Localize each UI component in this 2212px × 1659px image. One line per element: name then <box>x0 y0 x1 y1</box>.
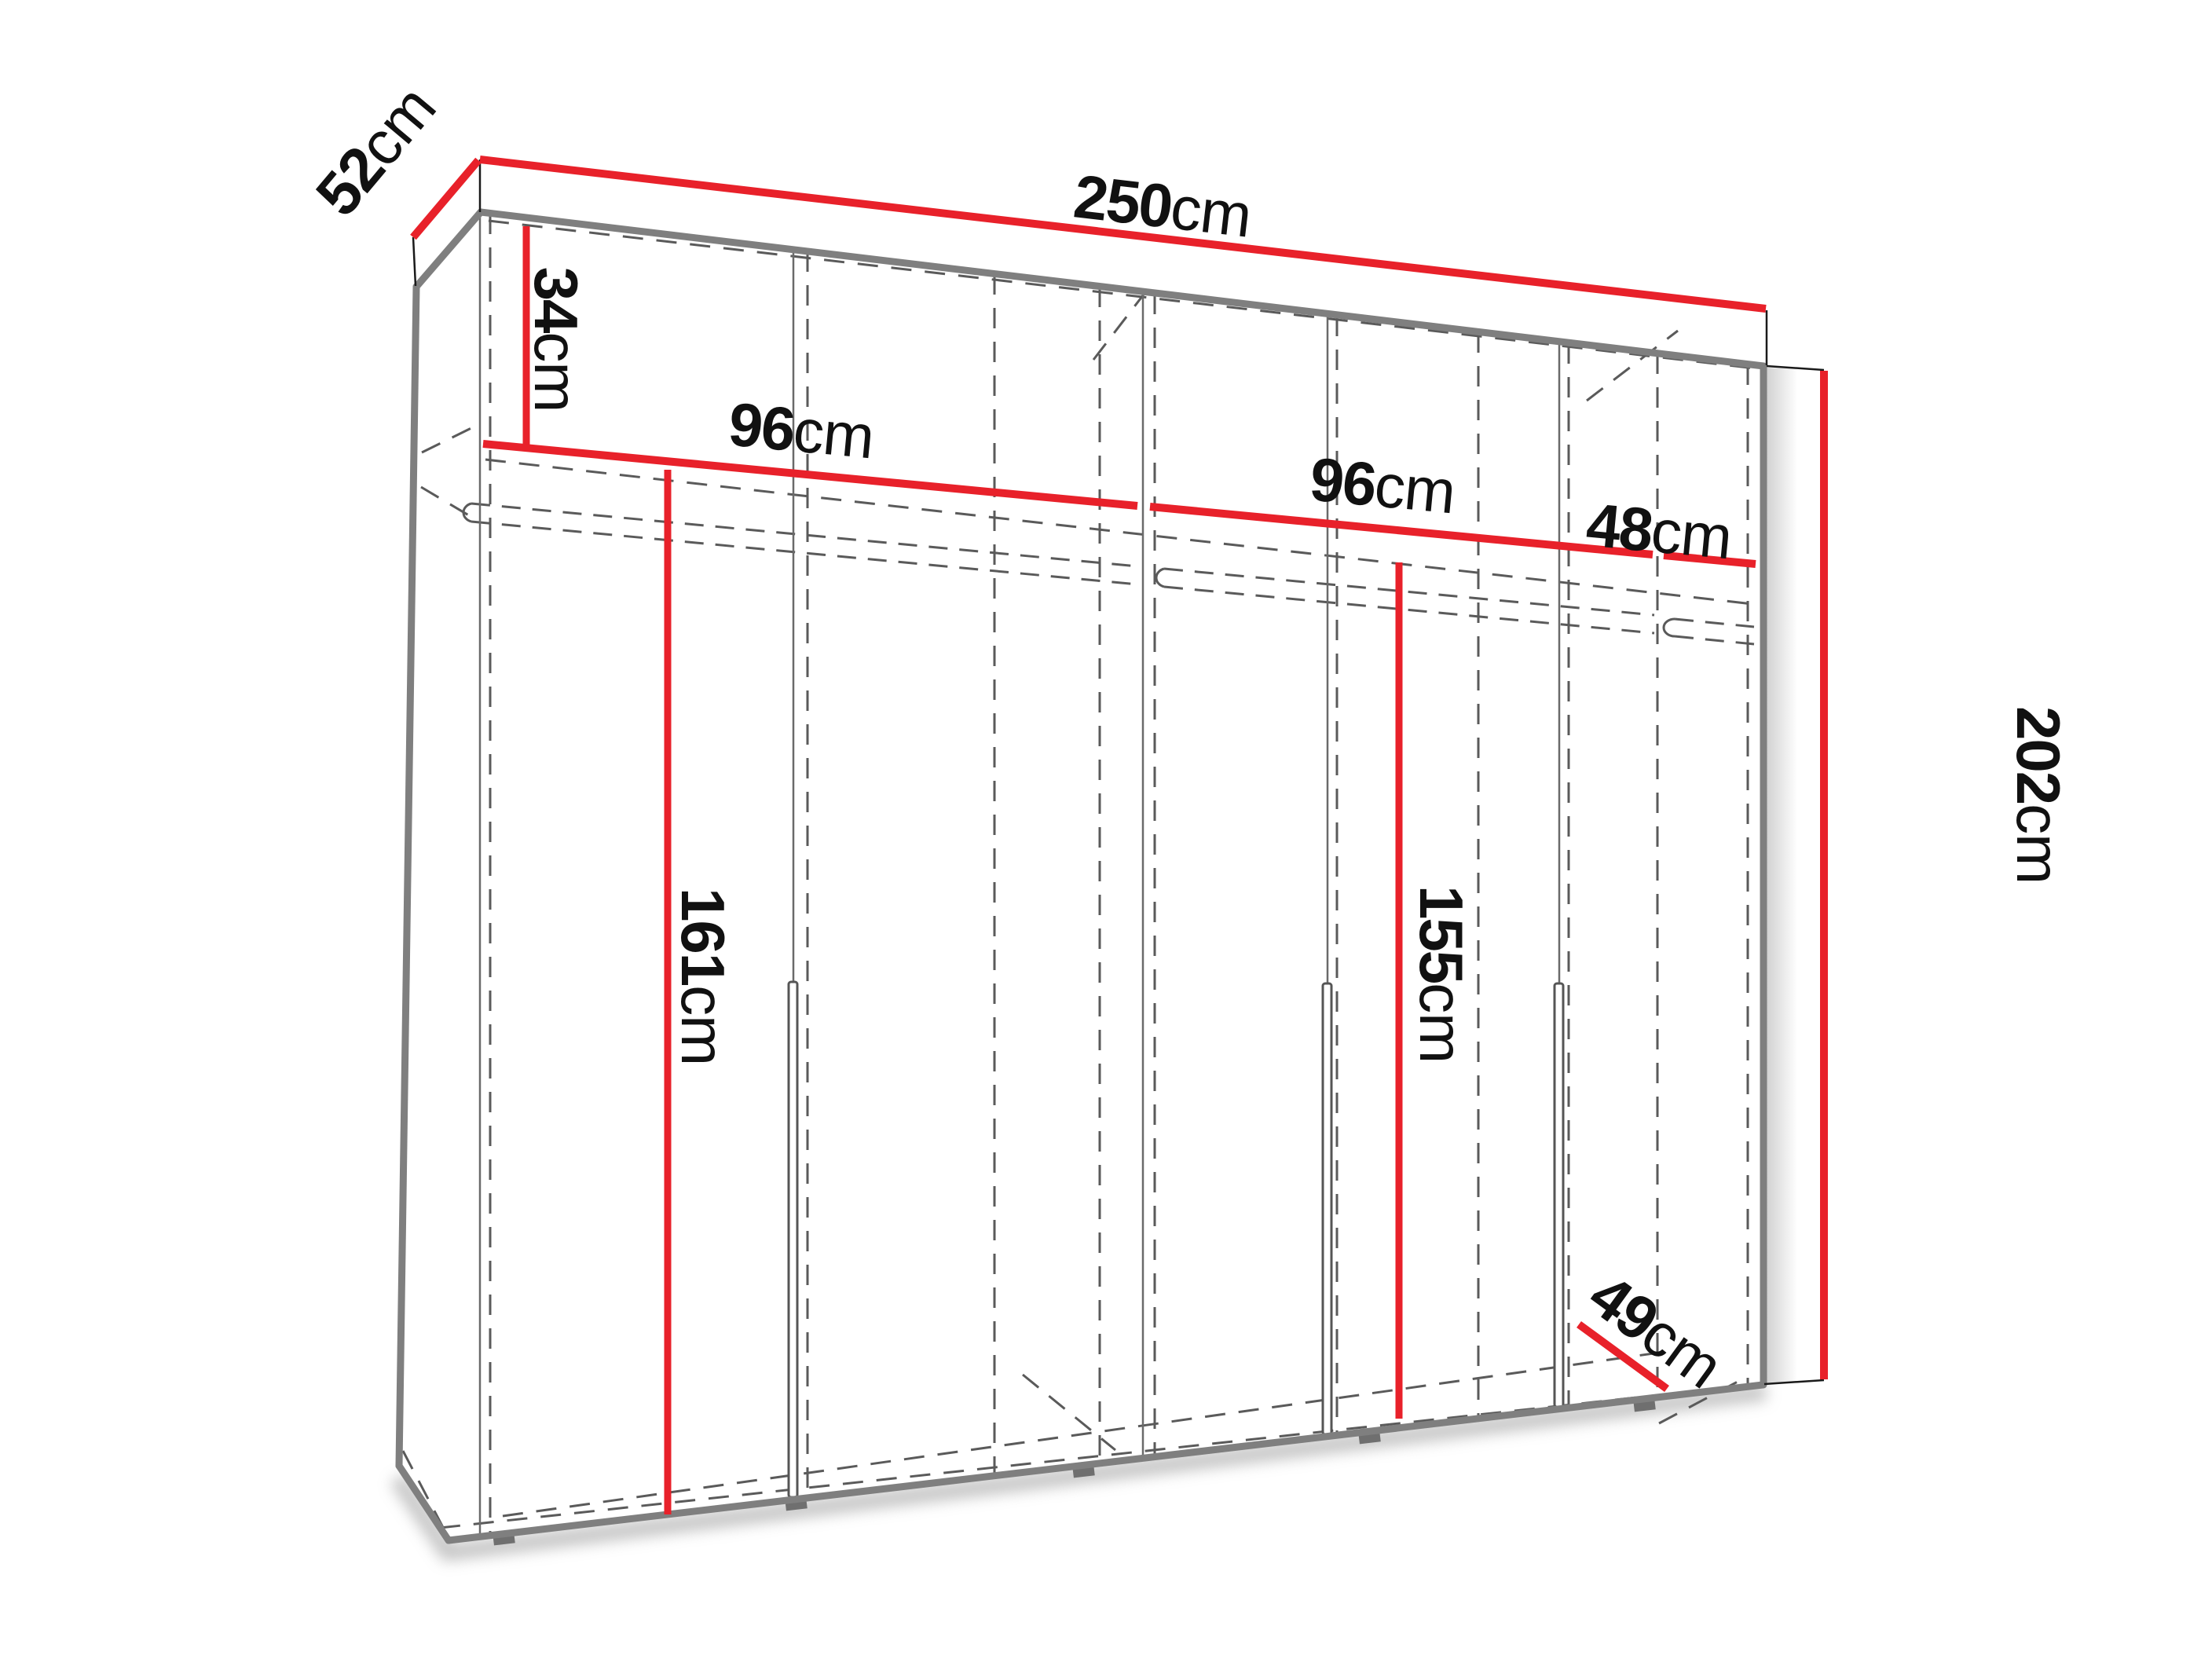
dim-label-top-shelf-height: 34cm <box>526 267 587 412</box>
wardrobe-dimension-diagram: 250cm 52cm 34cm 96cm 96cm 48cm 161cm 155… <box>0 0 2212 1659</box>
wardrobe-line-drawing <box>0 0 2212 1659</box>
dim-label-middle-section-width: 96cm <box>1307 448 1457 522</box>
right-side-panel <box>1765 368 1824 1384</box>
handle-middle-doors <box>1323 983 1331 1434</box>
dim-label-right-section-width: 48cm <box>1584 493 1734 568</box>
dim-label-total-height: 202cm <box>2008 706 2069 884</box>
dim-label-left-hanging-height: 161cm <box>672 888 734 1065</box>
dim-label-middle-hanging-height: 155cm <box>1411 885 1472 1063</box>
dim-label-left-section-width: 96cm <box>726 393 876 467</box>
handle-left-doors <box>789 982 797 1497</box>
handle-right-doors <box>1555 983 1563 1407</box>
